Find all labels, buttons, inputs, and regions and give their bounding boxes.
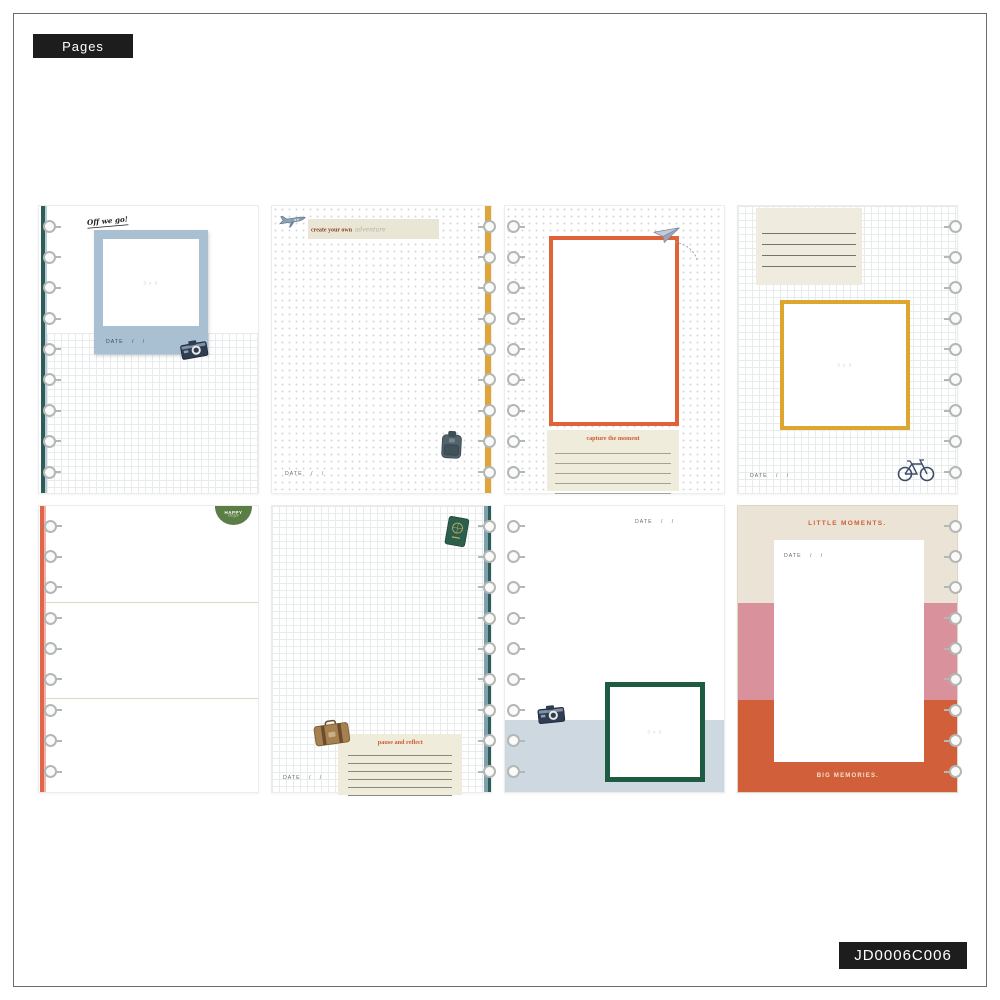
- binder-disc: [483, 765, 496, 778]
- page-1-discs: [43, 220, 56, 479]
- writing-line: [348, 772, 452, 780]
- binder-disc: [44, 734, 57, 747]
- page-1-script-title: Off we go!: [87, 213, 145, 231]
- binder-disc: [43, 312, 56, 325]
- page-7-green-frame: DATE// 3 x 3: [504, 505, 725, 794]
- binder-disc: [949, 373, 962, 386]
- binder-disc: [43, 220, 56, 233]
- binder-disc: [949, 673, 962, 686]
- page-2-adventure-dot-grid: create your own adventure DATE//: [271, 205, 492, 494]
- binder-disc: [44, 581, 57, 594]
- date-field: DATE//: [750, 470, 826, 481]
- camera-icon: [537, 703, 566, 730]
- binder-disc: [483, 466, 496, 479]
- writing-line: [555, 454, 671, 464]
- binder-disc: [949, 466, 962, 479]
- writing-line: [762, 234, 856, 245]
- binder-disc: [507, 642, 520, 655]
- binder-disc: [949, 642, 962, 655]
- happy-days-badge: HAPPY days: [215, 506, 252, 525]
- page-3-discs: [507, 220, 520, 479]
- binder-disc: [44, 550, 57, 563]
- binder-disc: [949, 435, 962, 448]
- page-5-happy-days-sections: HAPPY days: [38, 505, 259, 794]
- binder-disc: [507, 581, 520, 594]
- sku-text: JD0006C006: [854, 947, 952, 964]
- binder-disc: [483, 220, 496, 233]
- page-8-little-moments: LITTLE MOMENTS. DATE// BIG MEMORIES.: [737, 505, 958, 794]
- binder-disc: [44, 642, 57, 655]
- binder-disc: [507, 765, 520, 778]
- binder-disc: [507, 373, 520, 386]
- page-8-discs: [949, 520, 962, 779]
- binder-disc: [949, 765, 962, 778]
- page-7-discs: [507, 520, 520, 779]
- binder-disc: [507, 550, 520, 563]
- binder-disc: [949, 550, 962, 563]
- binder-disc: [483, 550, 496, 563]
- suitcase-icon: [312, 717, 352, 752]
- yellow-photo-frame: 3 x 3: [780, 300, 910, 430]
- paper-airplane-icon: [652, 224, 681, 250]
- date-field: DATE//: [784, 550, 860, 561]
- page-1-grid-area: [47, 333, 258, 493]
- binder-disc: [507, 466, 520, 479]
- binder-disc: [483, 343, 496, 356]
- binder-disc: [483, 520, 496, 533]
- binder-disc: [43, 373, 56, 386]
- page-6-pause-and-reflect: pause and reflect DATE//: [271, 505, 492, 794]
- binder-disc: [483, 435, 496, 448]
- binder-disc: [507, 281, 520, 294]
- binder-disc: [949, 343, 962, 356]
- binder-disc: [507, 520, 520, 533]
- binder-disc: [507, 220, 520, 233]
- page-4-yellow-frame-grid: 3 x 3 DATE//: [737, 205, 958, 494]
- planner-pages-board: Off we go! 3 x 3 DATE//: [38, 205, 958, 793]
- binder-disc: [949, 312, 962, 325]
- writing-lines: [547, 444, 679, 494]
- pages-label-text: Pages: [62, 39, 104, 54]
- binder-disc: [44, 673, 57, 686]
- binder-disc: [483, 642, 496, 655]
- binder-disc: [44, 765, 57, 778]
- polaroid-frame: 3 x 3 DATE//: [94, 230, 208, 354]
- binder-disc: [43, 466, 56, 479]
- binder-disc: [483, 404, 496, 417]
- page-1-photo-polaroid: Off we go! 3 x 3 DATE//: [38, 205, 259, 494]
- binder-disc: [507, 343, 520, 356]
- big-memories-title: BIG MEMORIES.: [738, 770, 957, 781]
- note-box: [756, 208, 862, 285]
- binder-disc: [949, 220, 962, 233]
- binder-disc: [949, 734, 962, 747]
- binder-disc: [507, 612, 520, 625]
- binder-disc: [507, 435, 520, 448]
- photo-size-hint: 3 x 3: [610, 727, 700, 737]
- green-photo-frame: 3 x 3: [605, 682, 705, 782]
- writing-line: [348, 788, 452, 796]
- airplane-icon: [278, 211, 309, 236]
- binder-disc: [949, 281, 962, 294]
- binder-disc: [483, 312, 496, 325]
- camera-icon: [179, 338, 210, 366]
- binder-disc: [483, 673, 496, 686]
- page-4-discs: [949, 220, 962, 479]
- journaling-area: [774, 540, 924, 762]
- writing-line: [555, 444, 671, 454]
- box-title: pause and reflect: [338, 737, 462, 748]
- writing-line: [348, 756, 452, 764]
- page-6-discs: [483, 520, 496, 779]
- binder-disc: [483, 281, 496, 294]
- capture-the-moment-box: capture the moment: [547, 430, 679, 491]
- backpack-icon: [438, 429, 465, 465]
- binder-disc: [43, 435, 56, 448]
- binder-disc: [949, 581, 962, 594]
- writing-line: [762, 223, 856, 234]
- sku-badge: JD0006C006: [839, 942, 967, 969]
- binder-disc: [44, 704, 57, 717]
- section-divider: [46, 602, 258, 603]
- polaroid-photo-area: 3 x 3: [103, 239, 199, 326]
- binder-disc: [43, 251, 56, 264]
- date-field: DATE//: [635, 516, 711, 527]
- date-field: DATE//: [283, 772, 359, 783]
- binder-disc: [507, 704, 520, 717]
- date-field: DATE//: [106, 336, 182, 347]
- binder-disc: [949, 520, 962, 533]
- writing-line: [348, 780, 452, 788]
- page-2-discs: [483, 220, 496, 479]
- writing-line: [555, 484, 671, 494]
- binder-disc: [483, 612, 496, 625]
- binder-disc: [949, 404, 962, 417]
- binder-disc: [44, 612, 57, 625]
- writing-line: [762, 245, 856, 256]
- binder-disc: [483, 734, 496, 747]
- orange-photo-frame: [549, 236, 679, 426]
- writing-line: [555, 464, 671, 474]
- writing-line: [348, 748, 452, 756]
- photo-size-hint: 3 x 3: [784, 360, 906, 370]
- binder-disc: [507, 312, 520, 325]
- binder-disc: [44, 520, 57, 533]
- binder-disc: [507, 734, 520, 747]
- binder-disc: [507, 673, 520, 686]
- writing-line: [762, 256, 856, 267]
- photo-size-hint: 3 x 3: [103, 278, 199, 288]
- box-title: capture the moment: [547, 433, 679, 444]
- section-divider: [46, 698, 258, 699]
- binder-disc: [483, 251, 496, 264]
- writing-lines: [756, 223, 862, 267]
- bicycle-icon: [896, 456, 936, 487]
- binder-disc: [483, 581, 496, 594]
- page-5-discs: [44, 520, 57, 779]
- page-2-title: create your own adventure: [308, 219, 439, 239]
- binder-disc: [949, 251, 962, 264]
- binder-disc: [949, 704, 962, 717]
- binder-disc: [483, 373, 496, 386]
- pause-and-reflect-box: pause and reflect: [338, 734, 462, 795]
- date-field: DATE//: [285, 468, 361, 479]
- binder-disc: [43, 404, 56, 417]
- binder-disc: [949, 612, 962, 625]
- binder-disc: [483, 704, 496, 717]
- page-3-capture-the-moment: capture the moment: [504, 205, 725, 494]
- little-moments-title: LITTLE MOMENTS.: [738, 518, 957, 529]
- writing-line: [555, 474, 671, 484]
- binder-disc: [43, 343, 56, 356]
- writing-line: [348, 764, 452, 772]
- binder-disc: [43, 281, 56, 294]
- binder-disc: [507, 404, 520, 417]
- binder-disc: [507, 251, 520, 264]
- pages-label: Pages: [33, 34, 133, 58]
